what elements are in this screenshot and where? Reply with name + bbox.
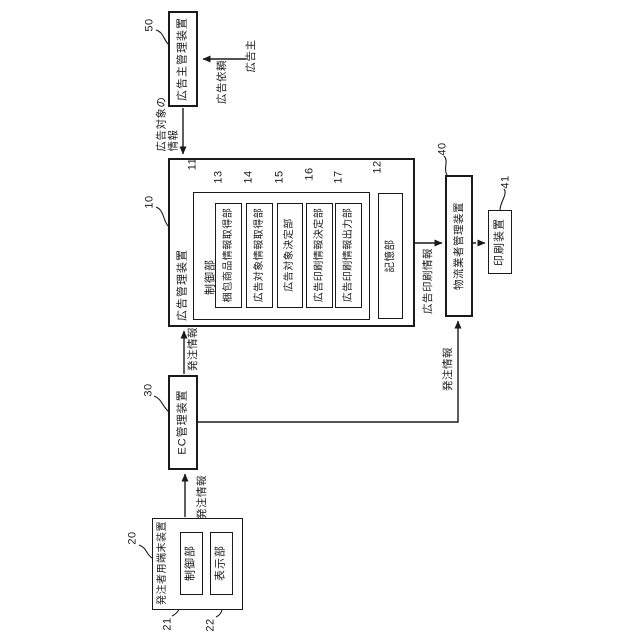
leader-41 bbox=[500, 189, 505, 210]
label-advertiser-mgmt: 広告主管理装置 bbox=[177, 17, 190, 101]
label-ad-print-info-decision: 広告印刷情報決定部 bbox=[314, 208, 326, 303]
arrow-order-info-ec-to-logistics bbox=[198, 321, 458, 422]
label-ec-mgmt: EC管理装置 bbox=[177, 389, 190, 454]
leader-30 bbox=[154, 396, 169, 412]
label-logistics-mgmt: 物流業者管理装置 bbox=[453, 202, 465, 290]
label-control-unit: 制御部 bbox=[205, 259, 218, 295]
ref-16: 16 bbox=[304, 167, 317, 180]
ref-13: 13 bbox=[213, 170, 226, 183]
leader-20 bbox=[139, 545, 152, 558]
ref-22: 22 bbox=[205, 618, 218, 631]
edge-label-order-info-terminal-to-ec: 発注情報 bbox=[196, 475, 208, 519]
label-printing-device: 印刷装置 bbox=[494, 218, 507, 266]
ref-41: 41 bbox=[500, 175, 513, 188]
leader-50 bbox=[156, 30, 168, 44]
label-packed-item-info-acq: 梱包商品情報取得部 bbox=[223, 208, 235, 303]
ref-10: 10 bbox=[144, 195, 157, 208]
label-terminal-display: 表示部 bbox=[215, 545, 228, 581]
leader-10 bbox=[156, 207, 168, 226]
ref-14: 14 bbox=[243, 170, 256, 183]
ref-21: 21 bbox=[162, 617, 175, 630]
edge-label-ad-target-info: 広告対象の 情報 bbox=[156, 97, 181, 152]
actor-advertiser: 広告主 bbox=[245, 40, 257, 73]
edge-label-order-info-ec-to-logistics: 発注情報 bbox=[442, 347, 454, 391]
ref-50: 50 bbox=[144, 18, 157, 31]
label-ad-target-info-acq: 広告対象情報取得部 bbox=[254, 208, 266, 303]
label-orderer-terminal: 発注者用端末装置 bbox=[157, 521, 169, 605]
ref-20: 20 bbox=[127, 531, 140, 544]
edge-label-order-info-ec-to-admgmt: 発注情報 bbox=[187, 327, 199, 371]
label-ad-mgmt: 広告管理装置 bbox=[177, 249, 190, 321]
ref-40: 40 bbox=[437, 142, 450, 155]
patent-block-diagram: 広告主管理装置 広告管理装置 制御部 梱包商品情報取得部 広告対象情報取得部 広… bbox=[0, 0, 640, 640]
label-ad-target-decision: 広告対象決定部 bbox=[284, 218, 296, 292]
edge-label-ad-print-info: 広告印刷情報 bbox=[422, 248, 434, 314]
edge-label-ad-request: 広告依頼 bbox=[216, 60, 228, 104]
label-storage-unit: 記憶部 bbox=[384, 240, 396, 273]
ref-12: 12 bbox=[372, 160, 385, 173]
ref-17: 17 bbox=[333, 170, 346, 183]
ref-15: 15 bbox=[274, 170, 287, 183]
label-ad-print-info-output: 広告印刷情報出力部 bbox=[343, 208, 355, 303]
label-terminal-control: 制御部 bbox=[185, 545, 198, 581]
ref-11: 11 bbox=[187, 158, 200, 170]
ref-30: 30 bbox=[143, 383, 156, 396]
leader-40 bbox=[444, 156, 447, 175]
